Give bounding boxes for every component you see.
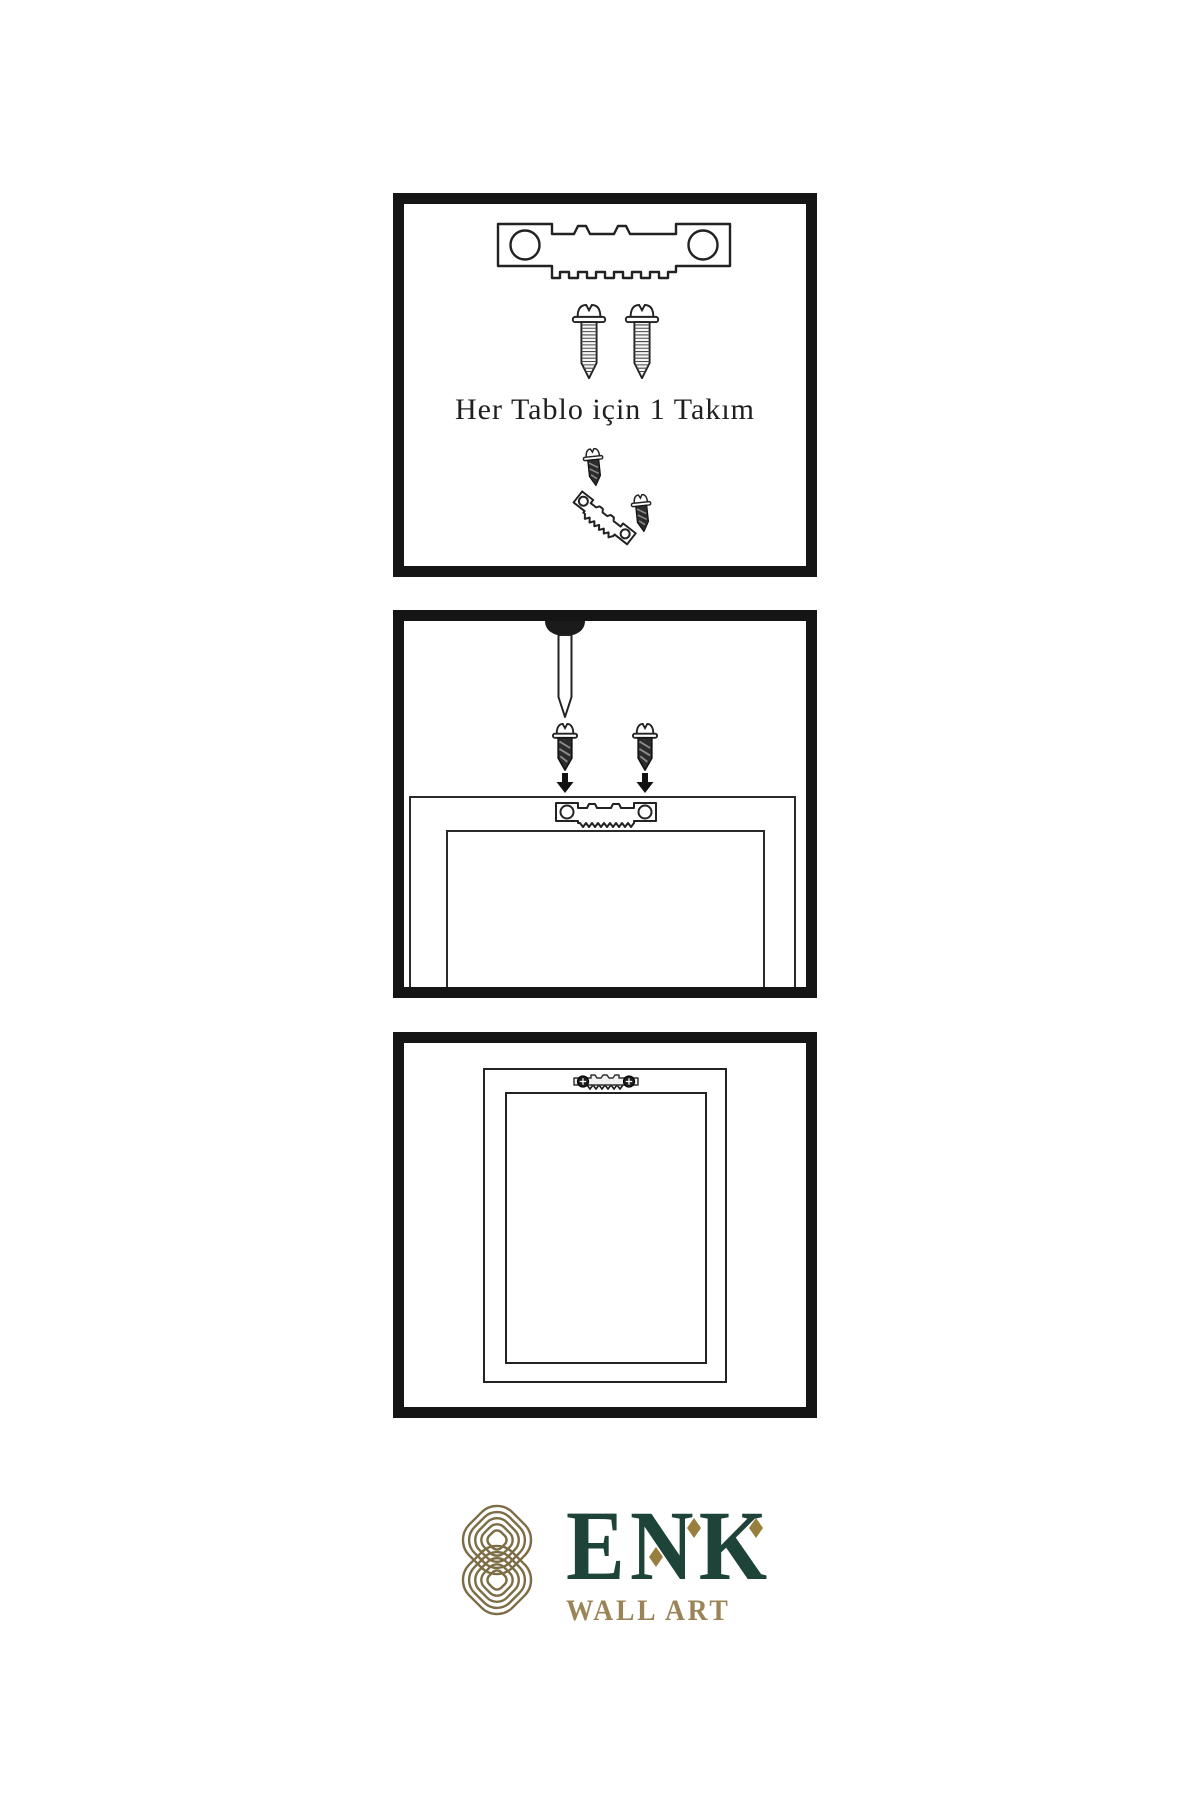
screw-icon [570,304,608,382]
sawtooth-hanger-icon [496,222,732,280]
screw-icon [623,304,661,382]
wall-nail-icon [543,621,587,721]
sawtooth-hanger-on-frame-icon [555,802,657,828]
tilted-hanger-icon [568,490,637,550]
screw-small-dark-icon [580,447,608,489]
step-1-caption: Her Tablo için 1 Takım [404,392,806,428]
brand-name: ENK [566,1496,773,1596]
diamond-icon [749,1518,763,1538]
screw-into-hanger-icon [564,444,694,566]
step-1-content: Her Tablo için 1 Takım [404,204,806,566]
interlocked-knot-icon [436,1491,558,1629]
down-arrow-icon [636,773,654,793]
instruction-step-1-panel: Her Tablo için 1 Takım [393,193,817,577]
instruction-step-3-panel [393,1032,817,1418]
step-3-content [404,1043,806,1407]
brand-subtitle: WALL ART [566,1594,731,1628]
screw-down-icon [630,723,660,773]
screw-down-icon [550,723,580,773]
instruction-step-2-panel [393,610,817,998]
diamond-icon [687,1518,701,1538]
down-arrow-icon [556,773,574,793]
hanging-frame-inner [505,1092,707,1364]
step-2-content [404,621,806,987]
frame-back-inner [446,830,765,987]
instruction-sheet: { "page": {"background": "#ffffff", "lan… [0,0,1200,1800]
diamond-icon [649,1547,663,1567]
mounted-hanger-icon [573,1073,639,1091]
